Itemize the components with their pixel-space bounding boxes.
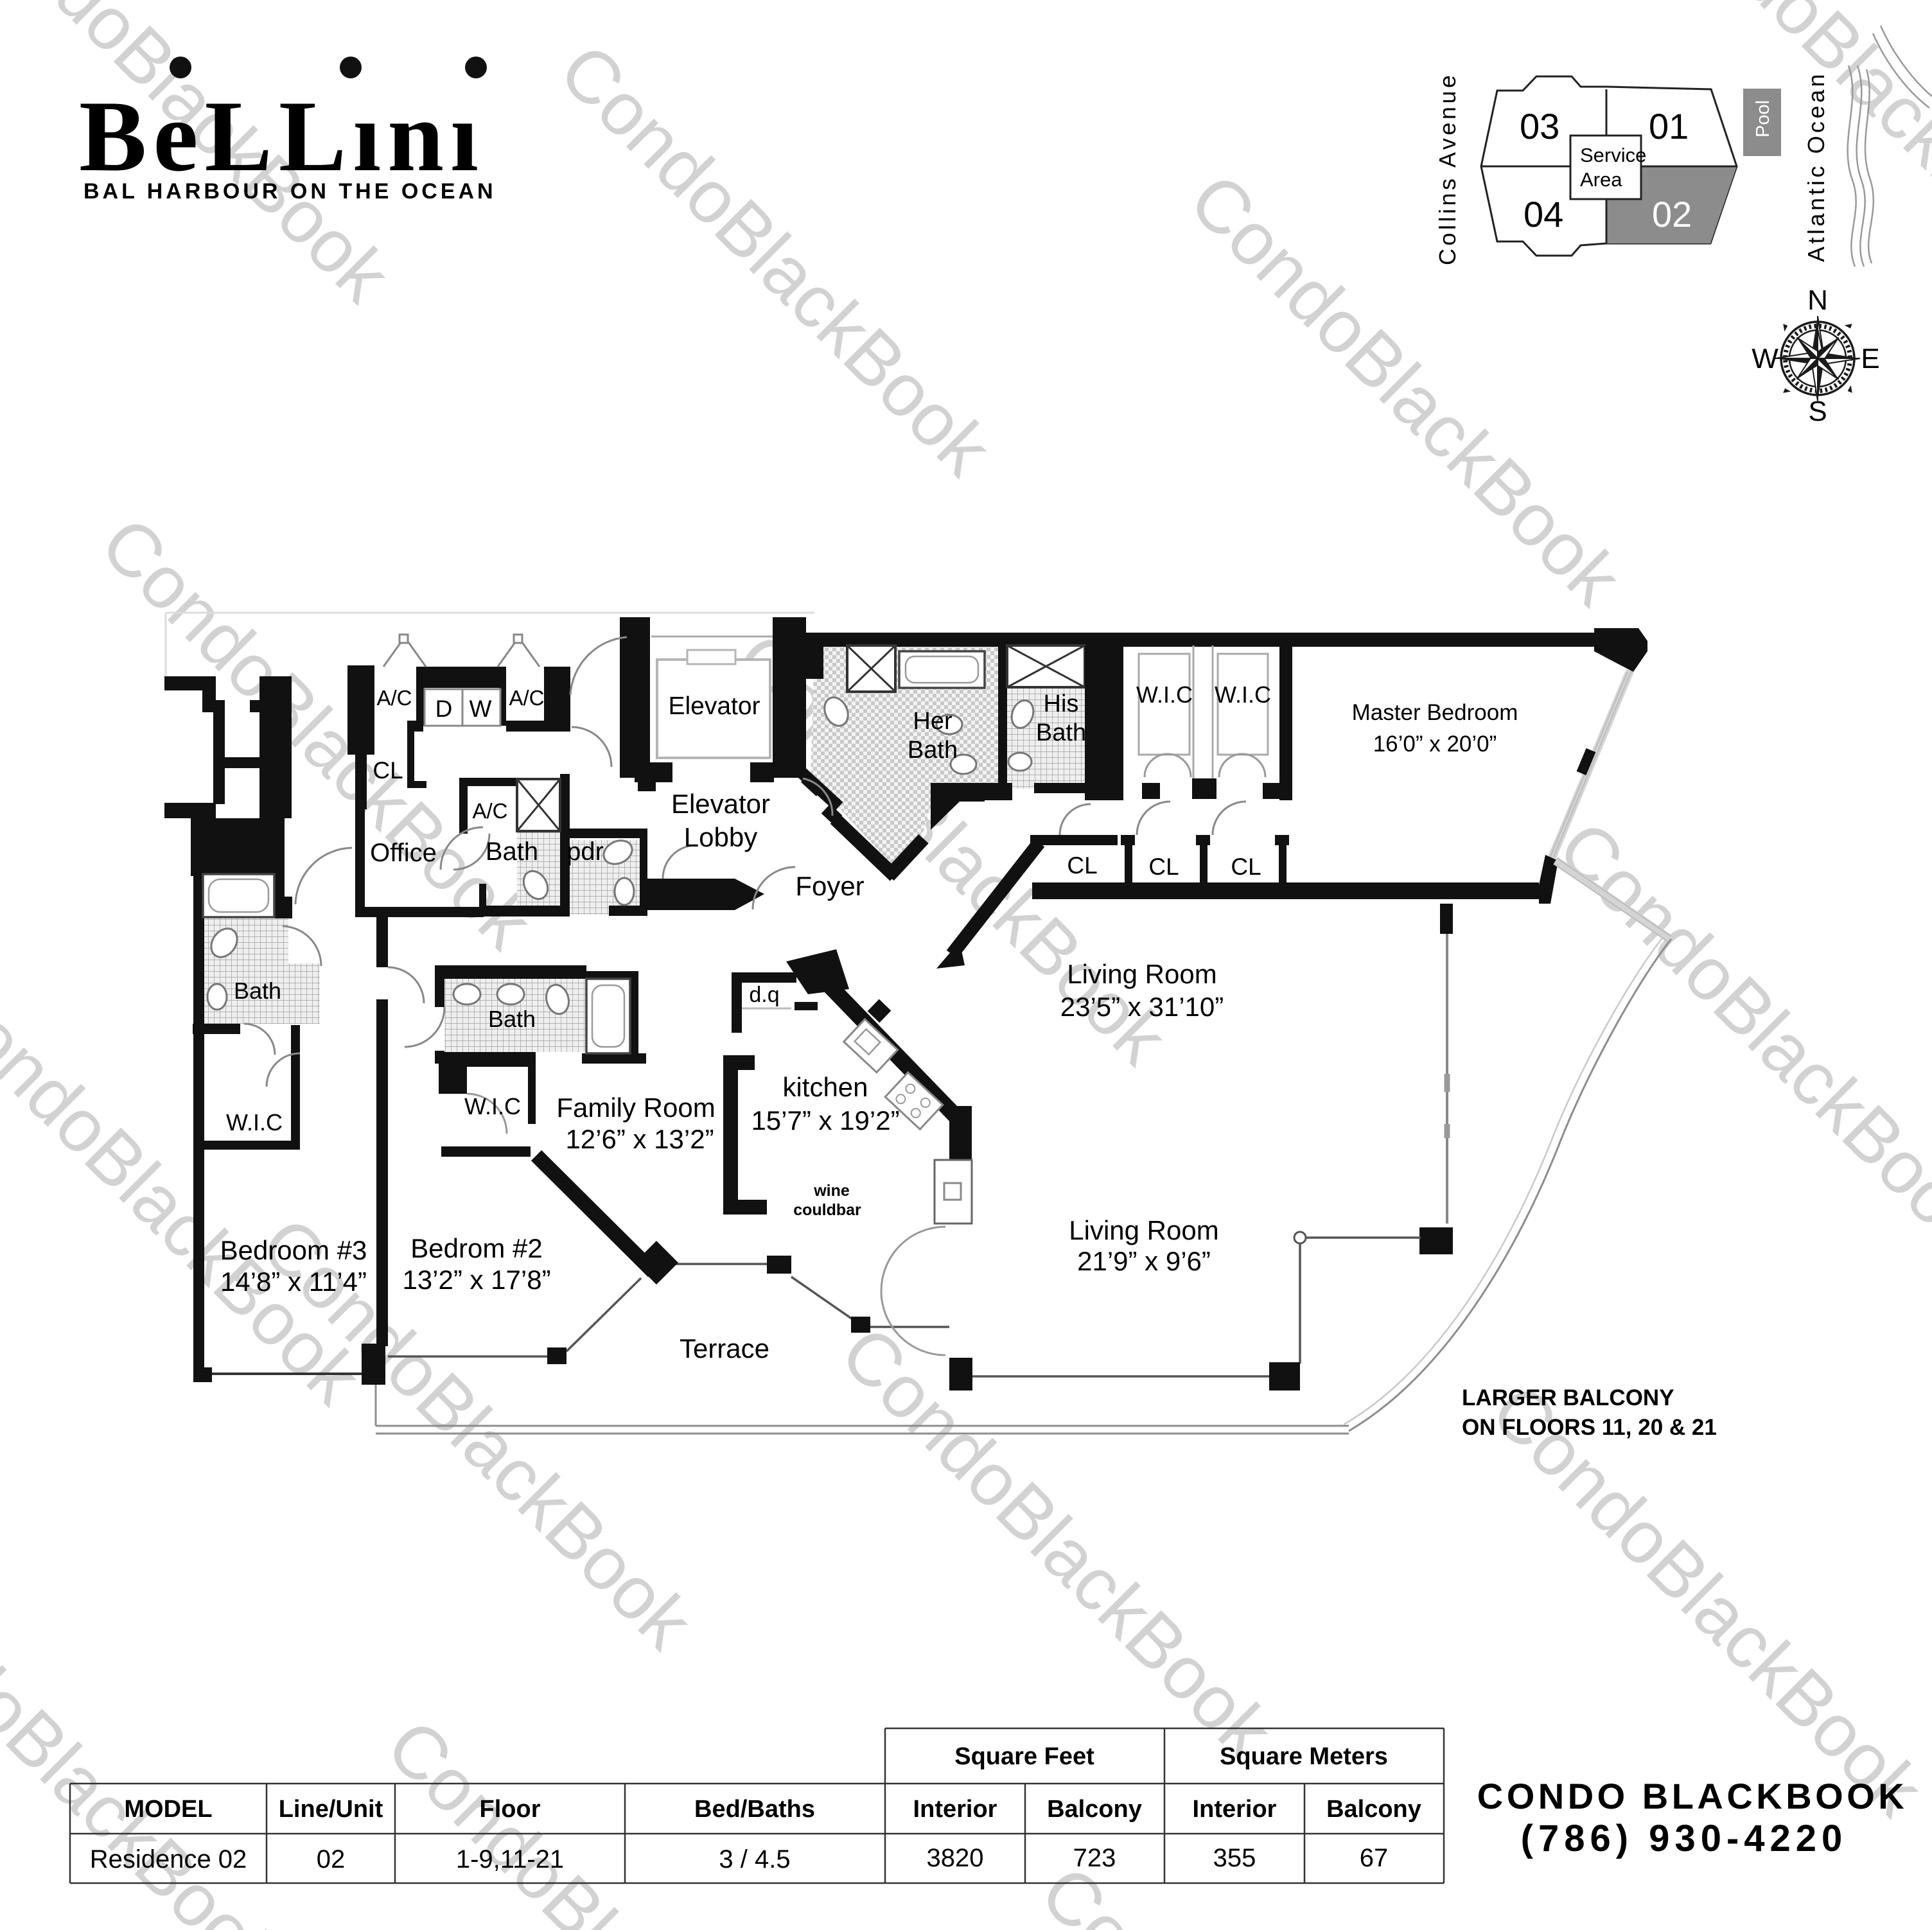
svg-text:CL: CL: [1231, 854, 1261, 880]
svg-text:N: N: [1807, 285, 1828, 316]
svg-text:Balcony: Balcony: [1326, 1796, 1421, 1823]
svg-text:CL: CL: [373, 757, 403, 784]
svg-text:Master Bedroom: Master Bedroom: [1352, 700, 1518, 725]
svg-text:LARGER BALCONY: LARGER BALCONY: [1462, 1385, 1674, 1410]
svg-text:Atlantic Ocean: Atlantic Ocean: [1803, 71, 1829, 262]
svg-text:23’5” x 31’10”: 23’5” x 31’10”: [1060, 992, 1224, 1022]
svg-text:3820: 3820: [927, 1844, 984, 1872]
svg-text:3 / 4.5: 3 / 4.5: [719, 1845, 790, 1873]
svg-text:Bedrom #2: Bedrom #2: [410, 1233, 542, 1263]
svg-text:Elevator: Elevator: [671, 789, 770, 819]
svg-text:1-9,11-21: 1-9,11-21: [456, 1845, 564, 1873]
svg-text:355: 355: [1213, 1844, 1256, 1872]
svg-text:02: 02: [1652, 194, 1692, 234]
svg-text:12’6” x 13’2”: 12’6” x 13’2”: [565, 1124, 714, 1154]
svg-text:Collins Avenue: Collins Avenue: [1434, 73, 1461, 266]
svg-text:14’8” x 11’4”: 14’8” x 11’4”: [220, 1267, 367, 1297]
svg-text:Bed/Baths: Bed/Baths: [694, 1796, 815, 1823]
svg-text:W.I.C: W.I.C: [1136, 681, 1193, 708]
svg-text:W: W: [470, 696, 492, 722]
svg-text:67: 67: [1360, 1844, 1389, 1872]
svg-text:W.I.C: W.I.C: [1215, 681, 1271, 708]
svg-text:Lobby: Lobby: [684, 822, 757, 852]
svg-text:Area: Area: [1580, 168, 1622, 191]
svg-text:Bedroom #3: Bedroom #3: [220, 1235, 367, 1265]
svg-text:CL: CL: [1067, 852, 1097, 879]
svg-text:Living Room: Living Room: [1067, 959, 1216, 989]
svg-text:couldbar: couldbar: [793, 1201, 861, 1219]
svg-text:Office: Office: [370, 839, 437, 867]
svg-text:Interior: Interior: [913, 1796, 997, 1823]
svg-text:Service: Service: [1580, 144, 1646, 166]
svg-text:Bath: Bath: [1036, 719, 1086, 746]
svg-text:CL: CL: [1148, 854, 1179, 880]
svg-text:MODEL: MODEL: [124, 1796, 212, 1823]
svg-text:A/C: A/C: [472, 799, 507, 823]
svg-text:Bath: Bath: [486, 838, 538, 866]
svg-text:W.I.C: W.I.C: [464, 1093, 521, 1119]
svg-text:W.I.C: W.I.C: [226, 1109, 283, 1136]
svg-text:15’7” x 19’2”: 15’7” x 19’2”: [751, 1105, 899, 1136]
svg-text:pdr: pdr: [566, 838, 604, 866]
svg-text:S: S: [1808, 396, 1827, 427]
svg-text:D: D: [435, 696, 453, 722]
svg-text:Family Room: Family Room: [556, 1092, 715, 1123]
svg-text:Living Room: Living Room: [1069, 1215, 1218, 1245]
svg-text:A/C: A/C: [509, 686, 544, 710]
svg-text:Bath: Bath: [234, 978, 281, 1004]
svg-text:16’0” x 20’0”: 16’0” x 20’0”: [1373, 732, 1497, 757]
svg-text:A/C: A/C: [376, 686, 412, 710]
svg-text:ON FLOORS 11, 20 & 21: ON FLOORS 11, 20 & 21: [1462, 1415, 1717, 1440]
svg-text:W: W: [1752, 343, 1778, 374]
svg-text:Pool: Pool: [1753, 100, 1773, 137]
svg-text:Bath: Bath: [488, 1006, 536, 1032]
svg-text:CONDO BLACKBOOK: CONDO BLACKBOOK: [1477, 1776, 1908, 1816]
svg-text:(786) 930-4220: (786) 930-4220: [1521, 1818, 1848, 1859]
svg-text:01: 01: [1649, 106, 1689, 146]
svg-text:BAL HARBOUR ON THE OCEAN: BAL HARBOUR ON THE OCEAN: [83, 179, 496, 204]
svg-text:Residence 02: Residence 02: [90, 1845, 247, 1873]
svg-text:E: E: [1861, 343, 1879, 374]
svg-text:Terrace: Terrace: [680, 1333, 769, 1364]
svg-text:Square Meters: Square Meters: [1220, 1743, 1388, 1770]
svg-text:Floor: Floor: [480, 1796, 541, 1823]
svg-text:Bath: Bath: [908, 737, 958, 764]
svg-text:His: His: [1044, 690, 1079, 717]
svg-text:wine: wine: [813, 1182, 850, 1200]
svg-text:13’2” x 17’8”: 13’2” x 17’8”: [402, 1265, 550, 1295]
svg-text:723: 723: [1073, 1844, 1116, 1872]
svg-text:Her: Her: [913, 708, 953, 735]
svg-text:BeLLını: BeLLını: [79, 80, 485, 193]
svg-text:Elevator: Elevator: [668, 692, 760, 720]
svg-text:Square Feet: Square Feet: [954, 1743, 1094, 1770]
svg-text:Balcony: Balcony: [1047, 1796, 1142, 1823]
svg-text:kitchen: kitchen: [782, 1072, 868, 1102]
svg-text:d.q: d.q: [749, 983, 779, 1007]
svg-text:Interior: Interior: [1193, 1796, 1277, 1823]
svg-text:Line/Unit: Line/Unit: [279, 1796, 383, 1823]
svg-text:04: 04: [1524, 194, 1563, 234]
svg-text:21’9” x 9’6”: 21’9” x 9’6”: [1077, 1246, 1211, 1276]
svg-text:03: 03: [1520, 106, 1559, 146]
svg-text:Foyer: Foyer: [795, 871, 864, 901]
svg-text:02: 02: [317, 1845, 346, 1873]
